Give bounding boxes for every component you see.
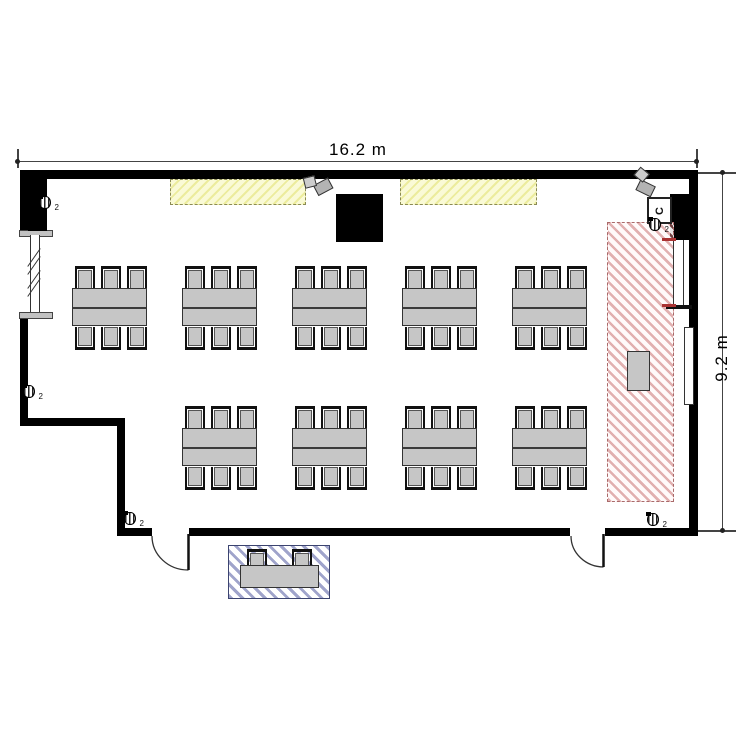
- chair: [405, 327, 425, 350]
- chair: [567, 327, 587, 350]
- table-group: [292, 406, 367, 490]
- chair: [347, 327, 367, 350]
- chair: [295, 406, 315, 429]
- table: [182, 428, 257, 466]
- chair: [127, 327, 147, 350]
- entry-table: [240, 565, 319, 588]
- chair: [515, 467, 535, 490]
- chair: [185, 327, 205, 350]
- table-group: [402, 406, 477, 490]
- chair: [431, 266, 451, 289]
- table: [292, 288, 367, 326]
- chair: [431, 467, 451, 490]
- chair: [405, 266, 425, 289]
- table-group: [72, 266, 147, 350]
- chair: [457, 327, 477, 350]
- table-group: [182, 406, 257, 490]
- chair: [295, 266, 315, 289]
- table-divider: [293, 307, 366, 309]
- chair: [321, 406, 341, 429]
- table-divider: [403, 307, 476, 309]
- furniture-layer: [0, 0, 750, 750]
- chair: [457, 467, 477, 490]
- chair: [457, 266, 477, 289]
- table-divider: [513, 447, 586, 449]
- chair: [101, 327, 121, 350]
- chair: [101, 266, 121, 289]
- chair: [347, 406, 367, 429]
- chair: [515, 327, 535, 350]
- table: [512, 288, 587, 326]
- table: [292, 428, 367, 466]
- chair: [237, 327, 257, 350]
- chair: [541, 327, 561, 350]
- chair: [347, 467, 367, 490]
- chair: [347, 266, 367, 289]
- table-group: [182, 266, 257, 350]
- chair: [295, 327, 315, 350]
- chair: [541, 467, 561, 490]
- chair: [405, 467, 425, 490]
- chair: [457, 406, 477, 429]
- table-divider: [403, 447, 476, 449]
- chair: [211, 406, 231, 429]
- table: [402, 288, 477, 326]
- chair: [431, 327, 451, 350]
- chair: [321, 266, 341, 289]
- chair: [567, 406, 587, 429]
- table-divider: [293, 447, 366, 449]
- classroom-floor-plan: 16.2 m 9.2 m C: [0, 0, 750, 750]
- chair: [321, 467, 341, 490]
- chair: [295, 467, 315, 490]
- chair: [185, 406, 205, 429]
- chair: [185, 467, 205, 490]
- chair: [237, 467, 257, 490]
- chair: [127, 266, 147, 289]
- table-group: [512, 406, 587, 490]
- chair: [75, 266, 95, 289]
- chair: [541, 266, 561, 289]
- table: [182, 288, 257, 326]
- table-divider: [183, 307, 256, 309]
- chair: [237, 266, 257, 289]
- chair: [321, 327, 341, 350]
- chair: [185, 266, 205, 289]
- chair: [515, 266, 535, 289]
- chair: [211, 327, 231, 350]
- chair: [567, 266, 587, 289]
- chair: [237, 406, 257, 429]
- chair: [211, 266, 231, 289]
- table-group: [292, 266, 367, 350]
- table: [512, 428, 587, 466]
- table-divider: [73, 307, 146, 309]
- chair: [211, 467, 231, 490]
- chair: [567, 467, 587, 490]
- table-divider: [513, 307, 586, 309]
- table-group: [512, 266, 587, 350]
- table-divider: [183, 447, 256, 449]
- chair: [75, 327, 95, 350]
- chair: [405, 406, 425, 429]
- chair: [515, 406, 535, 429]
- table-group: [402, 266, 477, 350]
- chair: [541, 406, 561, 429]
- table: [72, 288, 147, 326]
- table: [402, 428, 477, 466]
- chair: [431, 406, 451, 429]
